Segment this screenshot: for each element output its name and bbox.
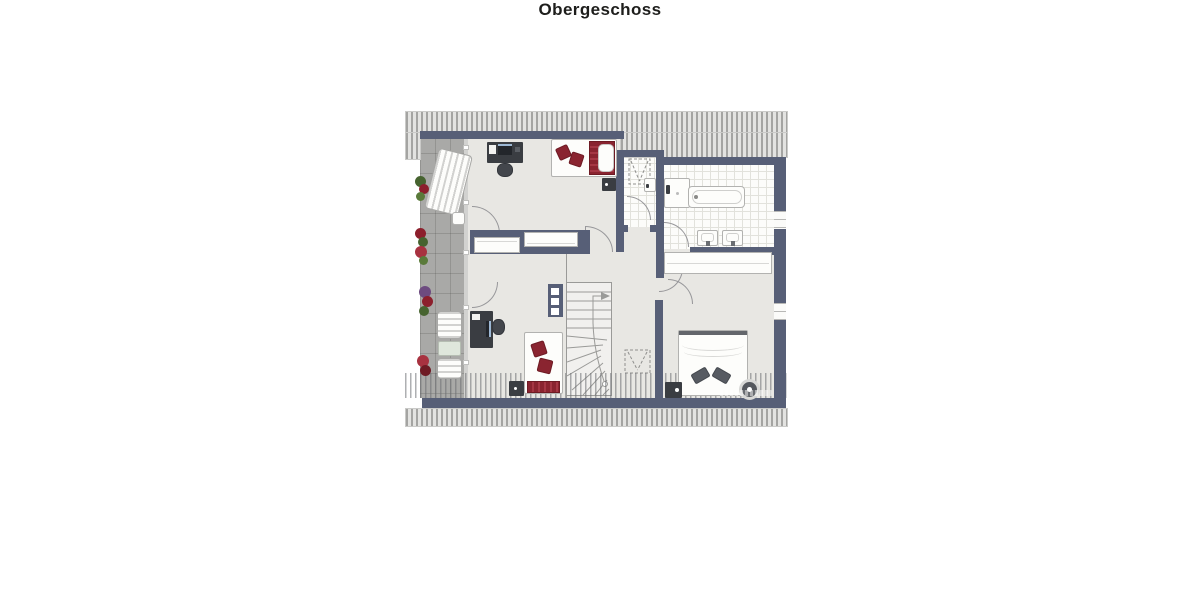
glass-mullion [463,200,469,205]
page-title: Obergeschoss [0,0,1200,20]
glass-mullion [463,145,469,150]
stair-side-line [566,254,567,398]
wall-right-outer [774,157,786,402]
wall-showerroom-bottom-right [650,225,664,232]
washbasin [722,230,743,246]
shower-drain [676,192,679,195]
nightstand [509,381,524,396]
window [774,303,786,320]
small-sink [644,178,656,192]
pillow [711,366,731,384]
nightstand [665,382,682,398]
knob [514,387,517,390]
desk-item [515,147,520,152]
balcony-chair [437,358,462,379]
monitor [498,144,512,155]
closet-line [667,263,769,264]
single-bed [524,332,563,394]
desk [487,142,523,163]
wall-bedroom-left [655,300,663,400]
wall-bathroom-top [660,157,786,165]
shelf-box [551,288,559,295]
glass-mullion [463,250,469,255]
glass-mullion [463,360,469,365]
built-in-wardrobe [524,232,578,247]
blanket-fold [684,347,742,357]
desk [470,311,493,348]
paper [489,145,496,154]
double-bed [678,330,748,396]
wall-bottom [422,398,786,408]
shelf-box [551,298,559,305]
tap [731,241,735,246]
red-cushion [537,358,554,375]
balcony-chair [437,311,462,339]
footboard [679,331,747,335]
roof-hatch-bottom [405,408,788,427]
paper [472,314,480,320]
roof-window-marker [624,349,651,374]
wardrobe-line [477,241,517,242]
watermark [720,390,772,396]
bathtub-tap [694,195,698,199]
bed-pillow [598,144,614,172]
built-in-wardrobe [474,237,520,253]
knob [605,183,608,186]
office-chair [492,319,505,335]
shower [664,178,690,208]
red-cushion [530,340,548,358]
balcony-side-table [452,212,465,225]
office-chair [497,163,513,177]
knob [675,388,679,392]
glass-mullion [463,305,469,310]
tap [646,184,649,188]
wardrobe-line [527,243,575,244]
wall-top [420,131,624,139]
bathtub-basin [692,190,742,204]
red-cushion [568,151,584,167]
floor-plan: Exposéplan, nicht maßstäblich [0,0,1200,600]
wall-showerroom-left [616,150,624,252]
roof-hatch-top-left [405,132,421,160]
roof-hatch-top [405,111,788,133]
wall-showerroom-right [656,150,664,278]
tap [706,241,710,246]
stair-direction-arrow [601,292,610,300]
balcony-table [438,341,461,356]
window [774,211,786,229]
bathtub [688,186,745,208]
single-bed [551,139,617,177]
wall-showerroom-bottom-left [616,225,628,232]
nightstand [602,178,616,191]
bed-slats [527,381,560,393]
wall-shelf [548,284,563,317]
shelf-box [551,308,559,315]
hall-closet [664,252,772,274]
monitor [486,321,491,337]
pillow [690,366,710,384]
shower-fixture [666,185,670,194]
washbasin [697,230,718,246]
